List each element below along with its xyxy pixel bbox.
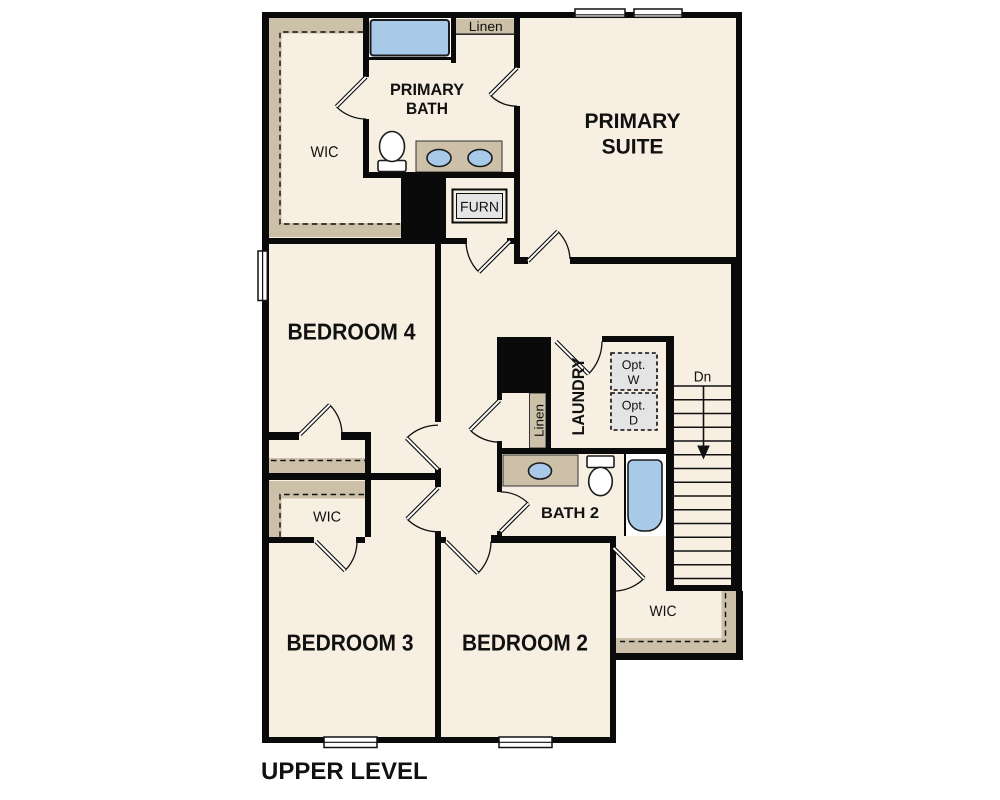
svg-text:BATH 2: BATH 2 (541, 505, 599, 522)
svg-text:PRIMARY: PRIMARY (584, 110, 680, 133)
svg-text:PRIMARY: PRIMARY (390, 81, 464, 99)
svg-text:Dn: Dn (694, 370, 712, 386)
svg-text:BEDROOM 4: BEDROOM 4 (288, 319, 416, 345)
svg-text:D: D (629, 414, 638, 428)
svg-text:BATH: BATH (406, 100, 448, 118)
svg-text:UPPER LEVEL: UPPER LEVEL (261, 758, 428, 785)
svg-text:LAUNDRY: LAUNDRY (569, 357, 588, 436)
svg-text:W: W (628, 373, 640, 387)
svg-text:WIC: WIC (311, 144, 339, 161)
svg-text:BEDROOM 3: BEDROOM 3 (287, 630, 414, 656)
svg-text:SUITE: SUITE (602, 136, 664, 159)
svg-text:WIC: WIC (650, 603, 677, 620)
svg-text:BEDROOM 2: BEDROOM 2 (462, 630, 588, 656)
svg-text:Linen: Linen (469, 19, 503, 34)
svg-text:WIC: WIC (313, 510, 341, 526)
svg-text:Opt.: Opt. (622, 399, 646, 413)
svg-text:FURN: FURN (460, 199, 499, 215)
svg-text:Linen: Linen (532, 404, 547, 437)
svg-text:Opt.: Opt. (622, 358, 646, 372)
